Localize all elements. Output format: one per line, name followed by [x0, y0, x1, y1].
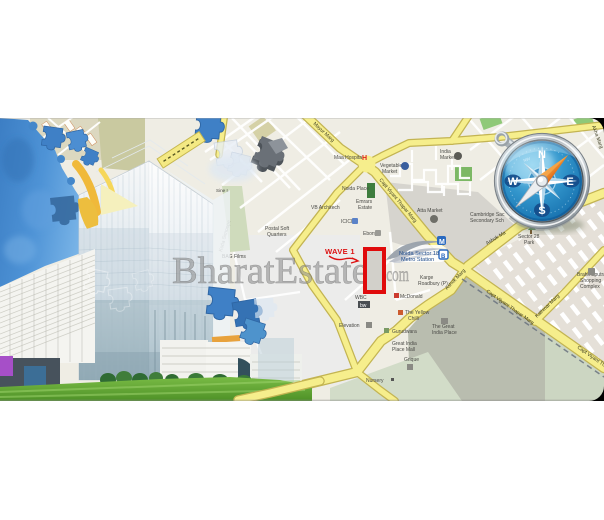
- svg-text:Nursery: Nursery: [366, 378, 384, 384]
- svg-text:Roadbury (P): Roadbury (P): [418, 281, 448, 287]
- svg-text:Market: Market: [382, 169, 398, 175]
- svg-text:Grique: Grique: [404, 357, 419, 363]
- svg-text:WAVE 1: WAVE 1: [325, 247, 355, 256]
- svg-text:VB Architech: VB Architech: [311, 205, 340, 211]
- svg-text:Elevation: Elevation: [339, 323, 360, 329]
- svg-text:Market: Market: [440, 155, 456, 161]
- svg-text:M: M: [439, 239, 445, 246]
- svg-text:India Place: India Place: [432, 330, 457, 336]
- svg-text:Atta Market: Atta Market: [417, 208, 443, 214]
- svg-text:Noida Place: Noida Place: [342, 186, 369, 192]
- svg-text:ICICI: ICICI: [341, 219, 352, 225]
- svg-text:.com: .com: [383, 262, 409, 286]
- svg-text:WBC: WBC: [355, 295, 367, 301]
- svg-text:H: H: [362, 155, 367, 162]
- svg-text:Maa Hospital: Maa Hospital: [334, 155, 363, 161]
- svg-text:bw: bw: [360, 303, 367, 309]
- svg-text:B: B: [441, 254, 446, 260]
- svg-text:Park: Park: [524, 240, 535, 246]
- svg-text:S: S: [538, 205, 545, 217]
- svg-text:Quarters: Quarters: [267, 232, 287, 238]
- svg-text:Chilli: Chilli: [408, 316, 419, 322]
- svg-text:Secondary Sch: Secondary Sch: [470, 218, 504, 224]
- svg-text:E: E: [566, 176, 573, 188]
- svg-text:Gurudwara: Gurudwara: [392, 329, 417, 335]
- svg-text:McDonald: McDonald: [400, 294, 423, 300]
- svg-text:Estate: Estate: [358, 205, 372, 211]
- svg-text:Place Mall: Place Mall: [392, 347, 415, 353]
- svg-text:Complex: Complex: [580, 284, 600, 290]
- svg-text:W: W: [508, 176, 519, 188]
- svg-text:BharatEstates: BharatEstates: [172, 250, 384, 292]
